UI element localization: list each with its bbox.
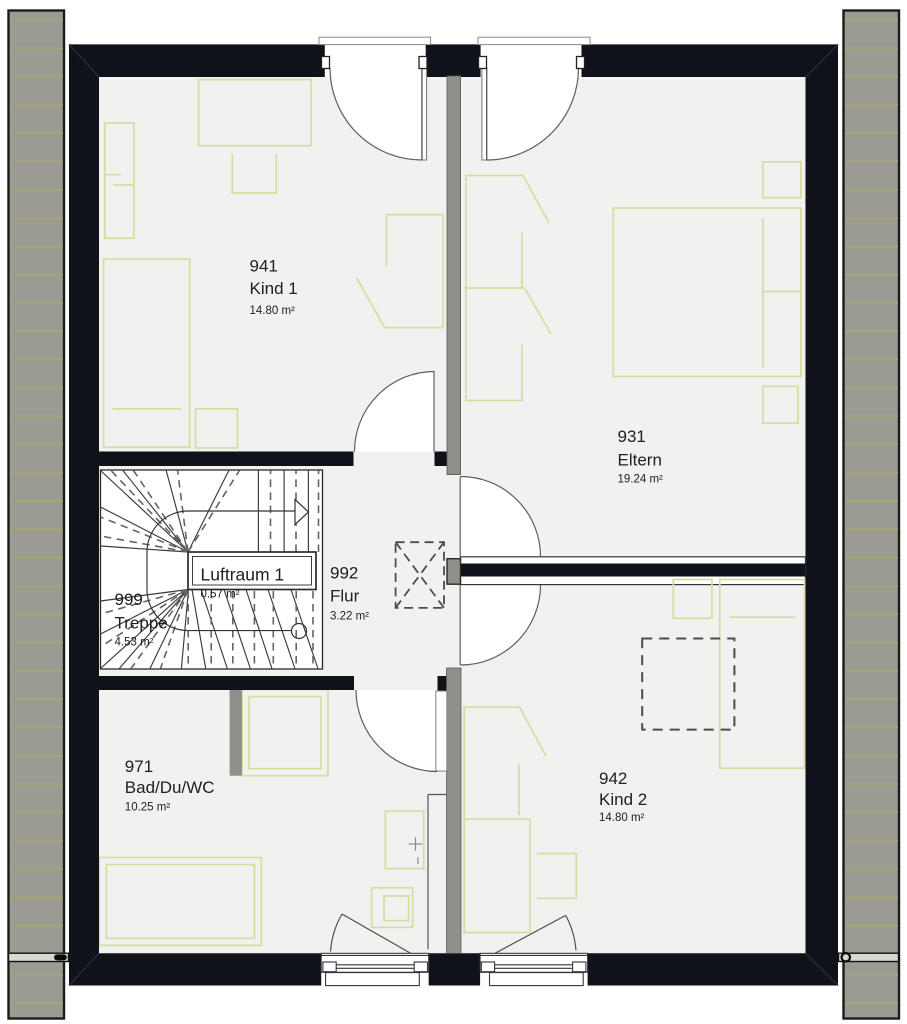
svg-text:Kind 2: Kind 2 bbox=[599, 790, 647, 809]
svg-text:941: 941 bbox=[250, 256, 278, 275]
svg-text:19.24 m²: 19.24 m² bbox=[618, 474, 664, 486]
svg-text:Flur: Flur bbox=[330, 587, 360, 606]
svg-text:Bad/Du/WC: Bad/Du/WC bbox=[125, 778, 215, 797]
svg-text:3.22 m²: 3.22 m² bbox=[330, 611, 369, 623]
svg-text:Eltern: Eltern bbox=[618, 451, 662, 470]
svg-text:14.80 m²: 14.80 m² bbox=[599, 812, 645, 824]
svg-text:0.57 m²: 0.57 m² bbox=[201, 589, 240, 601]
svg-text:942: 942 bbox=[599, 769, 627, 788]
svg-text:Kind 1: Kind 1 bbox=[250, 279, 298, 298]
svg-text:971: 971 bbox=[125, 757, 153, 776]
svg-text:Treppe: Treppe bbox=[115, 614, 168, 633]
svg-text:10.25 m²: 10.25 m² bbox=[125, 802, 171, 814]
svg-text:999: 999 bbox=[115, 590, 143, 609]
svg-text:Luftraum 1: Luftraum 1 bbox=[201, 565, 285, 585]
svg-text:992: 992 bbox=[330, 564, 358, 583]
svg-text:931: 931 bbox=[618, 427, 646, 446]
svg-text:14.80 m²: 14.80 m² bbox=[250, 305, 296, 317]
svg-text:4.53 m²: 4.53 m² bbox=[115, 637, 154, 649]
